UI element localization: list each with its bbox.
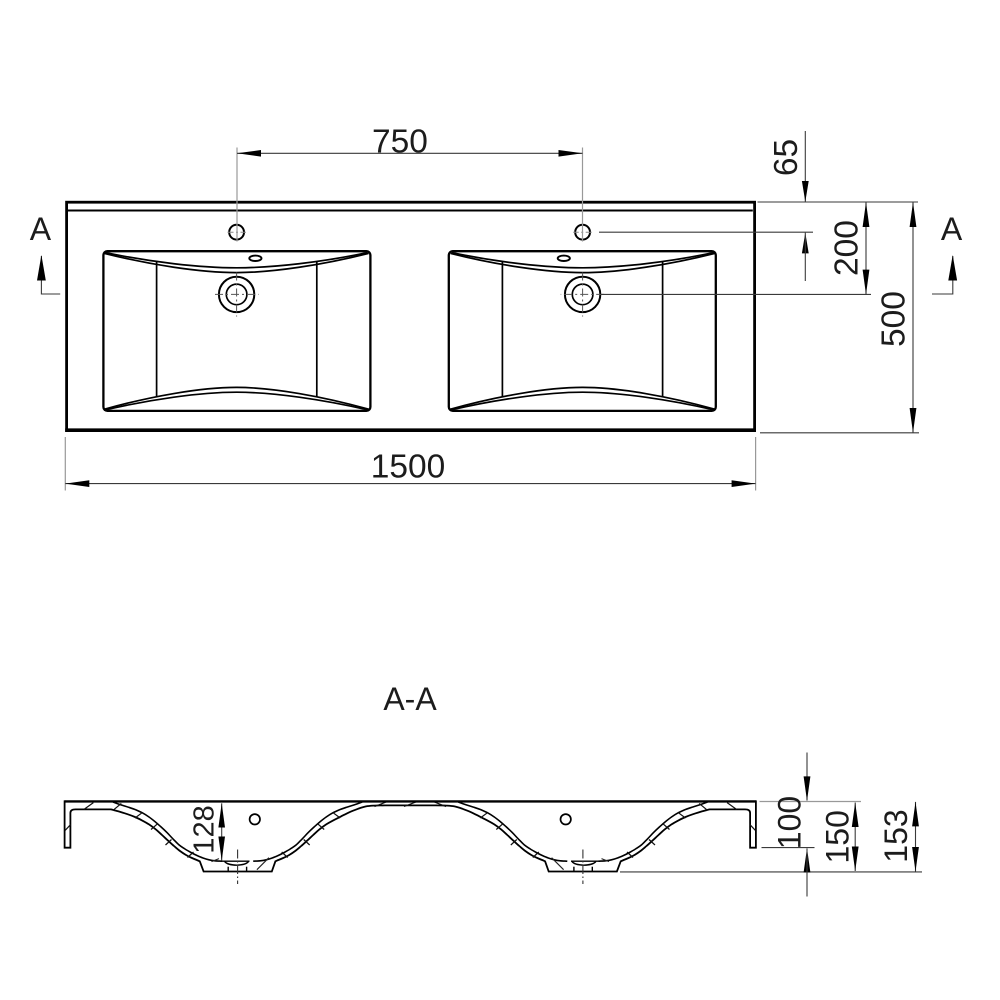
svg-text:A-A: A-A [383,681,437,717]
svg-text:65: 65 [768,139,805,176]
svg-text:150: 150 [820,810,856,863]
svg-text:128: 128 [189,805,221,853]
svg-text:100: 100 [772,796,808,849]
svg-text:153: 153 [878,809,914,862]
svg-text:A: A [941,211,963,247]
svg-text:750: 750 [372,124,428,161]
svg-text:A: A [30,211,52,247]
svg-text:1500: 1500 [371,449,446,486]
svg-text:500: 500 [876,291,913,347]
svg-text:200: 200 [829,220,866,276]
